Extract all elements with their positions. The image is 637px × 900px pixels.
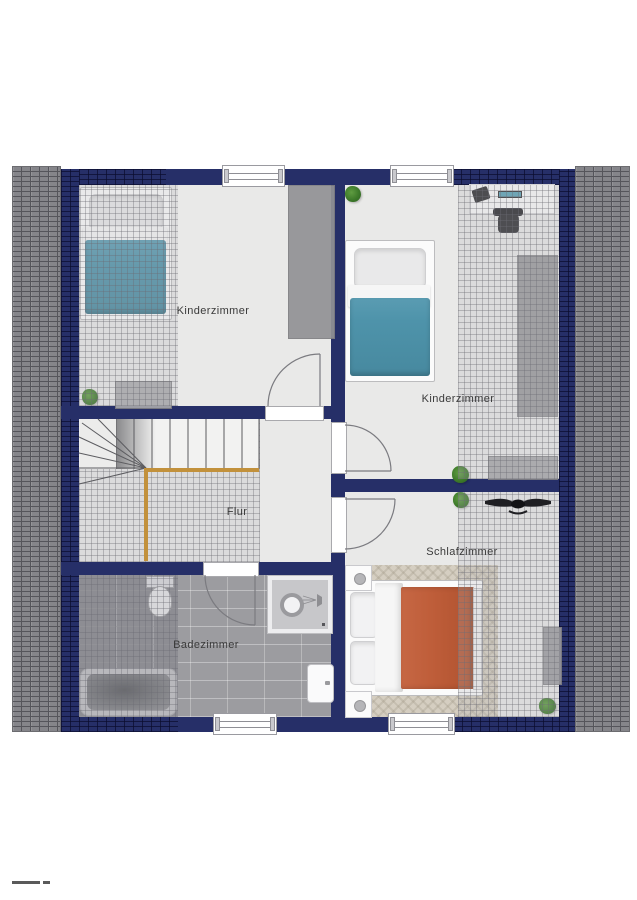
watermark xyxy=(43,881,50,884)
window-glazing xyxy=(227,173,280,180)
window-jamb xyxy=(448,717,453,731)
sloped-ceiling-zone xyxy=(79,575,178,717)
room-label-kinderzimmer-left: Kinderzimmer xyxy=(177,305,250,317)
wall-bottom xyxy=(275,717,388,732)
dot xyxy=(322,623,325,626)
sloped-ceiling-zone xyxy=(79,419,260,562)
pillow xyxy=(350,641,378,685)
window-jamb xyxy=(392,169,397,183)
window-glazing xyxy=(395,173,449,180)
window-glazing xyxy=(393,721,450,728)
window xyxy=(390,165,454,187)
door-frame xyxy=(331,422,347,474)
watermark xyxy=(12,881,40,884)
wardrobe xyxy=(288,185,335,339)
room-label-schlafzimmer: Schlafzimmer xyxy=(426,546,497,558)
room-label-flur: Flur xyxy=(227,506,248,518)
window-jamb xyxy=(278,169,283,183)
sink xyxy=(307,664,334,703)
nightstand-bottom xyxy=(345,691,372,718)
lamp-icon xyxy=(354,700,366,712)
floorplan-canvas: Kinderzimmer Kinderzimmer Flur Schlafzim… xyxy=(0,0,637,900)
window-glazing xyxy=(218,721,272,728)
window xyxy=(222,165,285,187)
wall-flur-bad xyxy=(257,562,331,575)
window xyxy=(388,713,455,735)
room-label-badezimmer: Badezimmer xyxy=(173,639,239,651)
duvet-white xyxy=(375,583,403,692)
wall-bottom xyxy=(453,717,575,732)
door-frame xyxy=(331,497,347,553)
lamp-icon xyxy=(354,573,366,585)
window-jamb xyxy=(224,169,229,183)
roof-band-left xyxy=(12,166,61,732)
faucet-icon xyxy=(325,681,330,685)
wall-left xyxy=(61,169,79,732)
room-label-kinderzimmer-right: Kinderzimmer xyxy=(422,393,495,405)
sloped-ceiling-zone xyxy=(79,185,178,406)
pillow xyxy=(350,592,378,638)
single-bed-right xyxy=(345,240,435,382)
nightstand-top xyxy=(345,565,372,591)
window-jamb xyxy=(270,717,275,731)
wall-flur-bad xyxy=(61,562,203,575)
window xyxy=(213,713,277,735)
sloped-ceiling-zone xyxy=(458,185,559,479)
plant-icon xyxy=(345,186,361,202)
teal-blanket xyxy=(350,298,430,376)
door-frame xyxy=(265,406,324,421)
wall-top xyxy=(283,169,390,185)
wall-top xyxy=(452,169,575,185)
window-jamb xyxy=(447,169,452,183)
window-jamb xyxy=(215,717,220,731)
pillow xyxy=(354,248,426,289)
sloped-ceiling-zone xyxy=(458,492,559,717)
window-jamb xyxy=(390,717,395,731)
wall-kizi-schlaf xyxy=(345,479,559,492)
roof-band-right xyxy=(575,166,630,732)
door-frame xyxy=(203,562,259,577)
shower xyxy=(268,576,332,633)
shower-drain-icon xyxy=(280,593,304,617)
wall-center xyxy=(331,472,345,497)
